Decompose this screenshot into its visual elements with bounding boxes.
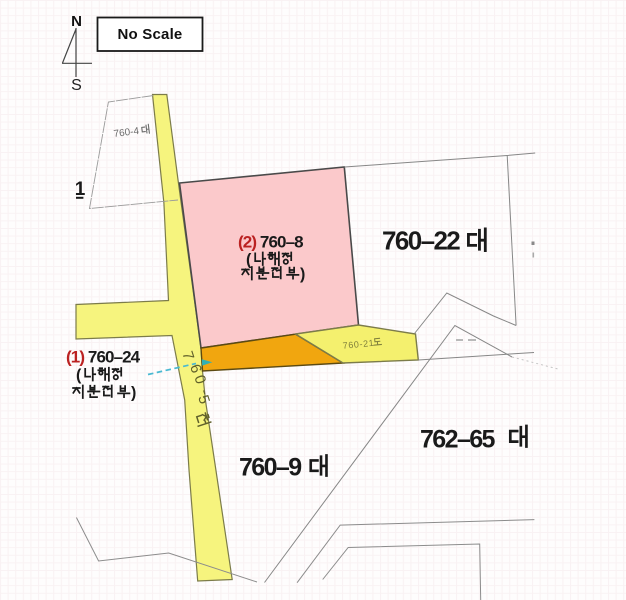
svg-text:762–65: 762–65 (420, 426, 496, 454)
svg-text:): ) (300, 266, 305, 283)
svg-text:(: ( (76, 367, 82, 384)
svg-text:760–9: 760–9 (239, 454, 301, 482)
svg-text:No Scale: No Scale (118, 26, 183, 43)
svg-text:(: ( (246, 252, 252, 269)
svg-text:N: N (71, 13, 82, 30)
svg-text:(1) 760–24: (1) 760–24 (66, 348, 141, 367)
svg-text:): ) (131, 385, 136, 402)
svg-text:760–22: 760–22 (382, 226, 460, 256)
svg-text:S: S (71, 77, 82, 94)
svg-text:(2) 760–8: (2) 760–8 (238, 233, 303, 252)
